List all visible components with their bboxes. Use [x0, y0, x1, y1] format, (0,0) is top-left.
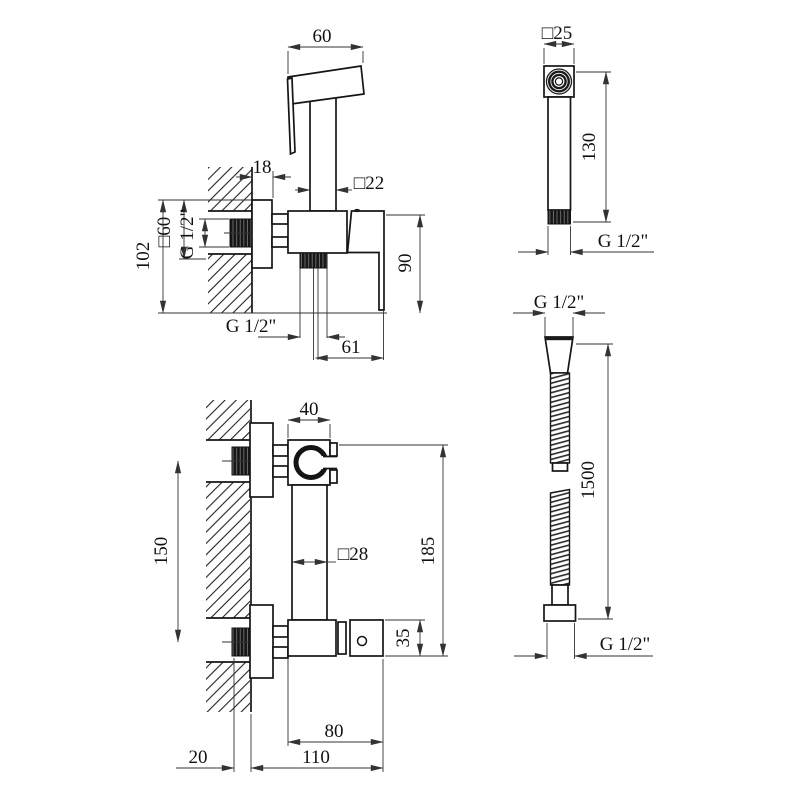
dim-hose-length-1500: 1500 [578, 461, 599, 499]
hose-end-tube [552, 585, 568, 605]
connector-step [273, 647, 288, 658]
view-faucet-front-bottom-left: 40 150 □28 185 35 80 110 20 [151, 399, 448, 772]
dim-hose-thread-top: G 1/2" [534, 292, 585, 313]
sprayer-body [548, 97, 571, 210]
dim-total-length-110: 110 [302, 747, 330, 768]
riser-column [292, 485, 327, 620]
dim-inlet-thread: G 1/2" [177, 209, 198, 260]
dim-mount-centers-150: 150 [151, 537, 172, 566]
dim-head-width-60: 60 [313, 26, 332, 47]
wall-hatch-top [206, 400, 250, 440]
wall-hatch-lower [208, 254, 252, 313]
sprayer-head-side [288, 66, 364, 104]
wall-flange-top [250, 423, 273, 497]
handle-button [358, 637, 367, 646]
dim-hose-thread-bottom: G 1/2" [600, 634, 651, 655]
dim-overall-height-102: 102 [133, 242, 154, 271]
holder-tab [330, 443, 337, 456]
valve-handle [350, 620, 383, 656]
wall-flange-bottom [250, 605, 273, 678]
dim-valve-height-35: 35 [393, 629, 414, 648]
dim-outlet-thread: G 1/2" [226, 316, 277, 337]
sprayer-thread [548, 210, 571, 224]
holder-tab [330, 470, 337, 483]
hose-break-end [553, 463, 568, 471]
dim-plate-square-60: □60 [154, 217, 175, 247]
dim-column-square-28: □28 [338, 544, 368, 565]
sprayer-post [310, 96, 336, 211]
dim-plate-depth-18: 18 [253, 157, 272, 178]
wall-hatch-upper [208, 167, 252, 211]
dim-sprayer-square-25: □25 [542, 23, 572, 44]
wall-hatch-bottom [206, 662, 250, 712]
hose-ribbed-upper [551, 373, 570, 463]
dim-body-height-90: 90 [395, 254, 416, 273]
dim-sprayer-length-130: 130 [579, 133, 600, 162]
view-sprayer-top-right: □25 130 G 1/2" [518, 23, 654, 255]
hose-nut [544, 605, 576, 621]
dim-sprayer-thread: G 1/2" [598, 231, 649, 252]
hose-ribbed-lower [551, 490, 570, 586]
dim-post-square-22: □22 [354, 173, 384, 194]
connector-step [273, 466, 288, 477]
dim-holder-width-40: 40 [300, 399, 319, 420]
dim-total-height-185: 185 [418, 537, 439, 566]
hose-cone-top-band [545, 337, 573, 340]
valve-body [288, 620, 336, 656]
drawing-canvas: 60 18 □22 □60 G 1/2" 102 90 G 1/2" 61 [0, 0, 800, 800]
dim-outlet-offset-61: 61 [342, 337, 361, 358]
holder-slot-gap [322, 456, 339, 469]
connector-step [272, 237, 288, 247]
handle-dot [354, 209, 360, 212]
dim-valve-length-80: 80 [325, 721, 344, 742]
connector-step [273, 445, 288, 456]
mixer-body [288, 211, 347, 253]
connector-step [273, 626, 288, 637]
hose-cone-fitting [545, 337, 573, 373]
dim-wall-offset-20: 20 [189, 747, 208, 768]
wall-hatch-middle [206, 482, 250, 618]
threaded-outlet [300, 253, 327, 268]
technical-drawing: 60 18 □22 □60 G 1/2" 102 90 G 1/2" 61 [0, 0, 800, 800]
view-hose-bottom-right: G 1/2" 1500 G 1/2" [513, 292, 653, 659]
valve-collar [338, 622, 346, 654]
wall-plate-flange [252, 200, 272, 268]
mixer-handle [348, 211, 385, 310]
view-faucet-side-top-left: 60 18 □22 □60 G 1/2" 102 90 G 1/2" 61 [133, 26, 425, 360]
connector-step [272, 214, 288, 224]
nozzle-center [555, 78, 562, 85]
